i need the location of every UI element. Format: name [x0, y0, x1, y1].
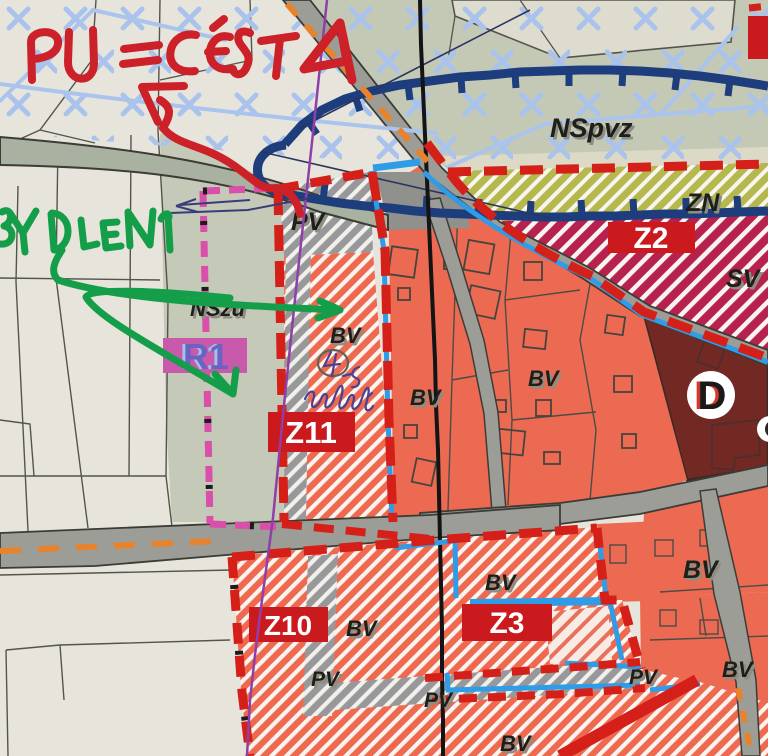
svg-text:ZN: ZN	[685, 189, 720, 217]
svg-text:BV: BV	[722, 657, 755, 682]
svg-text:Z11: Z11	[285, 415, 337, 450]
svg-text:Z2: Z2	[633, 222, 668, 255]
svg-text:PV: PV	[311, 668, 341, 691]
svg-text:BV: BV	[500, 731, 533, 756]
svg-text:BV: BV	[485, 570, 518, 595]
svg-text:BV: BV	[528, 366, 561, 391]
svg-text:Z3: Z3	[489, 607, 524, 640]
svg-text:D: D	[698, 374, 727, 418]
svg-text:BV: BV	[683, 556, 720, 584]
svg-text:NSpvz: NSpvz	[550, 113, 633, 143]
svg-text:Z10: Z10	[264, 610, 312, 641]
svg-text:BV: BV	[410, 385, 443, 410]
svg-text:SV: SV	[726, 265, 762, 293]
svg-text:BV: BV	[330, 323, 363, 348]
svg-text:PV: PV	[424, 689, 454, 712]
svg-text:BV: BV	[346, 616, 379, 641]
svg-text:PV: PV	[629, 666, 659, 689]
